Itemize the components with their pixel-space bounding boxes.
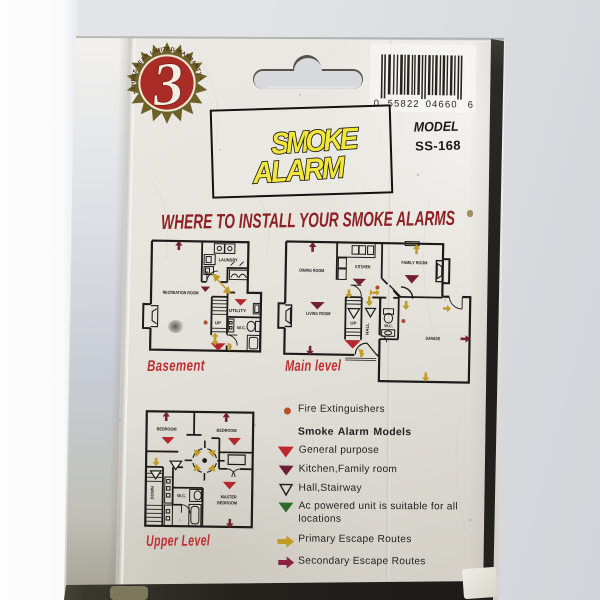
svg-text:W.C.: W.C. (237, 325, 246, 330)
svg-text:UP: UP (215, 320, 221, 325)
svg-text:W.C.: W.C. (384, 323, 393, 328)
svg-text:6: 6 (468, 100, 473, 109)
svg-text:04660: 04660 (426, 99, 457, 109)
svg-text:BEDROOM: BEDROOM (217, 500, 237, 505)
svg-text:MASTER: MASTER (221, 494, 238, 499)
svg-text:UTILITY: UTILITY (229, 308, 247, 313)
svg-text:W.C.: W.C. (177, 493, 186, 498)
svg-text:FAMILY ROOM: FAMILY ROOM (401, 260, 427, 265)
svg-text:3: 3 (149, 49, 185, 119)
svg-text:UP: UP (350, 321, 356, 326)
svg-text:LIVING ROOM: LIVING ROOM (306, 311, 331, 316)
svg-text:DINING ROOM: DINING ROOM (299, 268, 324, 273)
svg-text:KITCHEN: KITCHEN (355, 264, 370, 269)
svg-text:BEDROOM: BEDROOM (157, 426, 177, 431)
svg-text:DOWN: DOWN (150, 486, 155, 499)
svg-text:ALARM: ALARM (251, 151, 347, 190)
svg-text:55822: 55822 (388, 98, 419, 108)
svg-text:HALL: HALL (365, 323, 370, 335)
svg-text:LAUNDRY: LAUNDRY (219, 257, 238, 262)
svg-text:BEDROOM: BEDROOM (217, 428, 237, 433)
svg-text:RECREATION ROOM: RECREATION ROOM (163, 290, 199, 296)
svg-text:GARAGE: GARAGE (426, 336, 441, 341)
